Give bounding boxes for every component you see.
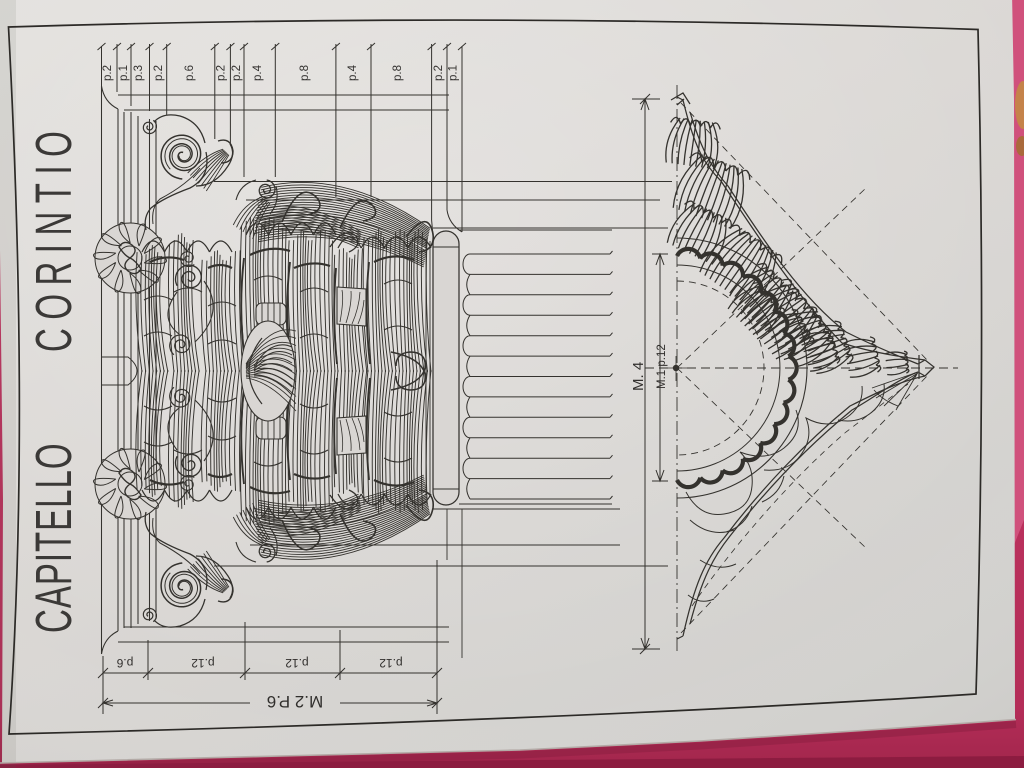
svg-text:p.8: p.8 xyxy=(299,65,311,81)
svg-text:p.2: p.2 xyxy=(102,65,114,81)
svg-text:p.4: p.4 xyxy=(347,64,359,81)
svg-text:p.2: p.2 xyxy=(216,65,228,81)
svg-text:p.4: p.4 xyxy=(252,64,264,81)
svg-text:p.2: p.2 xyxy=(231,65,243,81)
svg-text:p.12: p.12 xyxy=(285,656,309,670)
svg-text:p.1: p.1 xyxy=(118,65,130,81)
svg-text:p.8: p.8 xyxy=(392,65,404,81)
svg-text:p.12: p.12 xyxy=(379,656,403,670)
svg-text:p.12: p.12 xyxy=(191,656,215,670)
svg-text:p.6: p.6 xyxy=(184,65,196,81)
svg-text:M. 4: M. 4 xyxy=(630,362,647,391)
svg-text:p.2: p.2 xyxy=(153,65,165,81)
svg-text:CORINTIO: CORINTIO xyxy=(26,123,83,352)
svg-text:p.2: p.2 xyxy=(433,65,445,81)
svg-text:p.6: p.6 xyxy=(116,656,133,670)
svg-text:p.3: p.3 xyxy=(133,65,145,81)
svg-text:p.1: p.1 xyxy=(448,65,460,81)
svg-text:M.2 P.6: M.2 P.6 xyxy=(267,692,323,711)
svg-text:M.1 p.12: M.1 p.12 xyxy=(656,344,668,389)
svg-text:CAPITELLO: CAPITELLO xyxy=(26,442,83,633)
